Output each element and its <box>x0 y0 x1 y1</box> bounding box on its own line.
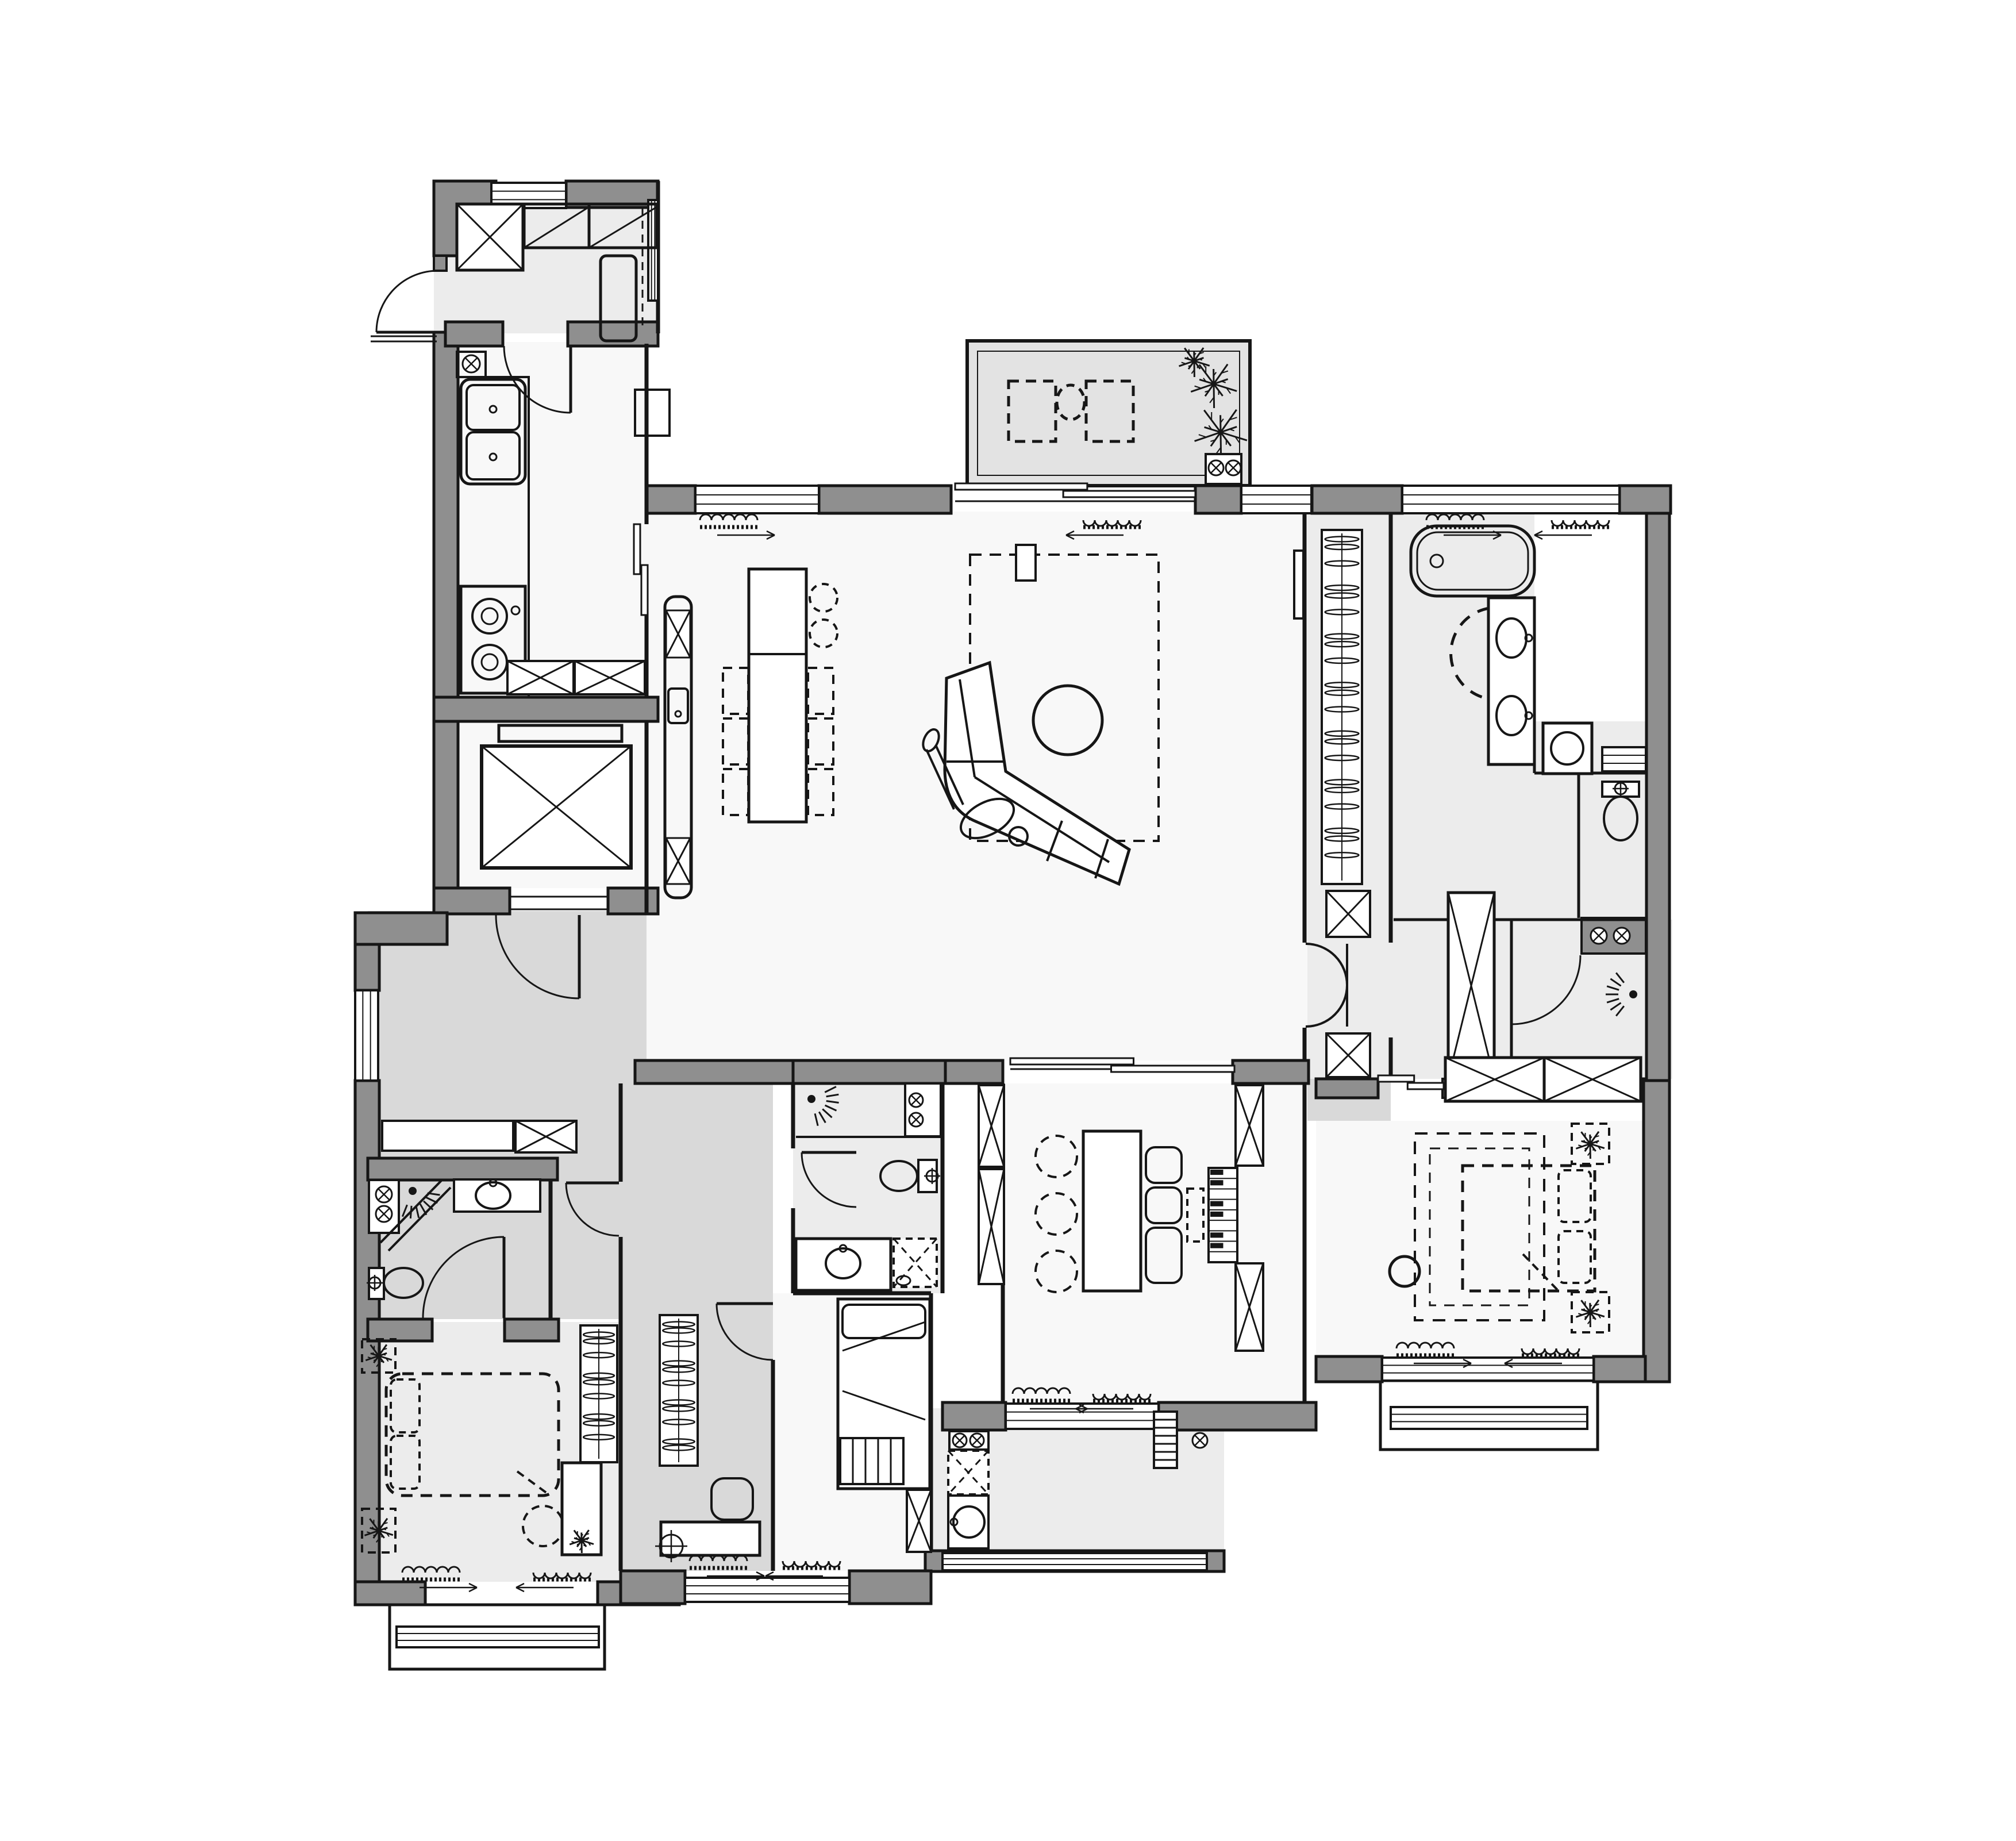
floor-nook <box>551 1180 621 1319</box>
wall <box>445 322 503 346</box>
bedroom2-wardrobe-rail <box>580 1325 617 1462</box>
wall <box>434 332 458 914</box>
window-master-bath <box>1402 486 1619 513</box>
wall <box>1195 486 1241 513</box>
master-vanity <box>1488 598 1534 764</box>
kitchen-base-cabinet <box>575 661 645 694</box>
washing-machine-dashed <box>894 1239 937 1287</box>
wall <box>368 1319 432 1341</box>
floor-drain <box>1614 928 1630 944</box>
study-wardrobe <box>979 1085 1004 1167</box>
suite-tall-wardrobe <box>1448 893 1494 1079</box>
wall <box>505 1319 559 1341</box>
cloakroom-cabinet <box>1326 1033 1370 1077</box>
window-living-1 <box>695 486 819 513</box>
floor-plan-canvas <box>0 0 2016 1841</box>
wetbar-cabinet <box>666 838 690 884</box>
kids-bed-ladder <box>840 1438 903 1484</box>
floor-drain <box>909 1113 923 1127</box>
storage-unit-x <box>482 746 631 868</box>
laundry-floor-drain <box>1192 1433 1207 1448</box>
wall <box>1316 1079 1378 1098</box>
cloakroom-rail <box>1322 530 1362 884</box>
drying-rack <box>1154 1412 1177 1468</box>
study-table <box>1083 1131 1141 1291</box>
wall <box>942 1402 1006 1430</box>
curtain <box>1534 520 1609 539</box>
floor-plan-page <box>0 0 2016 1841</box>
study-cabinet <box>1236 1085 1263 1166</box>
window-bedroom2-bay <box>397 1627 599 1647</box>
wall <box>1316 1356 1382 1382</box>
piano <box>1209 1168 1237 1262</box>
wall <box>355 1582 425 1605</box>
wall <box>849 1571 931 1604</box>
wall <box>434 256 447 271</box>
kitchen-floor-drain <box>463 355 480 372</box>
door-entry <box>376 271 438 332</box>
wall <box>368 1158 557 1180</box>
wall <box>608 888 658 914</box>
dressing-rail <box>660 1315 698 1466</box>
suite-wardrobe <box>1445 1058 1544 1101</box>
balcony-drain <box>1209 460 1224 475</box>
window-laundry-south <box>942 1553 1207 1570</box>
study-cabinet <box>1236 1263 1263 1351</box>
wall <box>793 1060 945 1083</box>
wall <box>1233 1060 1309 1083</box>
wall <box>355 944 379 990</box>
window-kids-south <box>685 1578 849 1602</box>
wall <box>819 486 951 513</box>
wall <box>568 322 658 346</box>
wall <box>635 1060 793 1083</box>
wall <box>1312 486 1402 513</box>
cloakroom-cabinet <box>1326 891 1370 937</box>
balcony-drain <box>1226 460 1241 475</box>
floor-drain <box>909 1093 923 1107</box>
bath-vanity <box>796 1239 891 1290</box>
window-study-south <box>1006 1404 1159 1429</box>
foyer-cabinet <box>515 1121 576 1152</box>
laundry-drain <box>953 1433 967 1447</box>
wall <box>945 1060 1003 1083</box>
dressing-desk <box>661 1522 760 1555</box>
wall <box>1646 512 1669 1081</box>
study-wardrobe <box>979 1169 1004 1284</box>
wall <box>1619 486 1671 513</box>
wall <box>434 888 510 914</box>
window-living-2 <box>1241 486 1311 513</box>
floor-drain <box>376 1186 392 1202</box>
dining-island <box>749 569 806 822</box>
suite-wardrobe <box>1544 1058 1641 1101</box>
window-toilet-room <box>1602 747 1646 771</box>
window-hall-west <box>355 990 378 1081</box>
kids-cabinet <box>907 1490 931 1552</box>
floor-kitchen <box>445 342 647 698</box>
side-table <box>1016 545 1036 581</box>
tv-panel <box>1294 551 1303 618</box>
wall <box>1159 1402 1316 1430</box>
floor-drain <box>1591 928 1607 944</box>
entry-closet <box>457 204 523 270</box>
wall <box>1644 1079 1669 1382</box>
wall <box>647 486 695 513</box>
wetbar-cabinet <box>666 610 690 658</box>
floor-drain <box>376 1206 392 1222</box>
bath-cabinet <box>905 1083 941 1136</box>
foyer-sideboard <box>382 1121 513 1151</box>
laundry-drain <box>970 1433 984 1447</box>
window-master-south <box>1382 1358 1594 1381</box>
wall <box>355 913 447 944</box>
kitchen-base-cabinet <box>507 661 574 694</box>
window-master-bay <box>1391 1407 1587 1429</box>
wall <box>621 1571 685 1604</box>
wall <box>1594 1356 1645 1382</box>
wall <box>434 697 658 721</box>
washer-dashed <box>948 1451 988 1494</box>
